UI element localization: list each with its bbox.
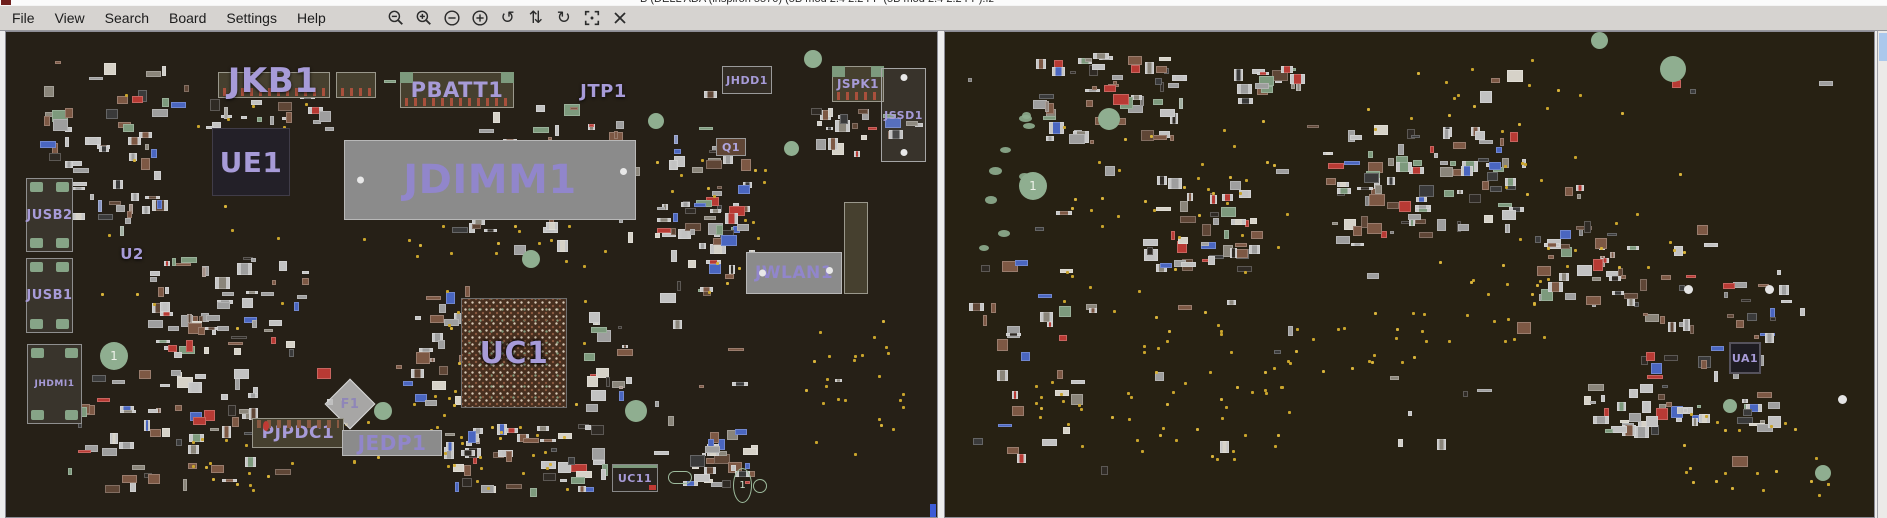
component (1307, 125, 1319, 128)
component (53, 119, 68, 131)
via-dot (1211, 455, 1214, 458)
test-pad (998, 230, 1010, 237)
component (570, 107, 578, 110)
component (690, 455, 705, 467)
component-label: JSSD1 (882, 69, 925, 161)
via-dot (1223, 129, 1226, 132)
component-label: JTP1 (566, 80, 641, 102)
via-dot (1141, 450, 1144, 453)
via-dot (1251, 391, 1254, 394)
component-jedp1[interactable]: JEDP1 (342, 430, 442, 456)
component (160, 302, 170, 312)
via-dot (892, 428, 895, 431)
menu-item-settings[interactable]: Settings (216, 6, 287, 30)
component (1607, 233, 1617, 236)
component (1210, 195, 1217, 204)
component (1723, 283, 1735, 289)
component (210, 428, 219, 431)
via-dot (1636, 213, 1639, 216)
via-dot (1204, 311, 1207, 314)
component (1336, 236, 1350, 244)
component (1090, 140, 1094, 144)
component (1052, 67, 1065, 76)
component (699, 243, 706, 249)
component (725, 213, 738, 224)
component (732, 382, 748, 386)
via-dot (443, 414, 446, 417)
component (473, 457, 477, 464)
component-uc1[interactable]: UC1 (461, 298, 567, 408)
component (234, 348, 241, 355)
via-dot (1692, 481, 1695, 484)
component (1160, 109, 1175, 117)
component (1071, 394, 1083, 405)
mounting-hole (1591, 32, 1608, 49)
via-dot (446, 290, 449, 293)
component-jdimm1[interactable]: JDIMM1 (344, 140, 636, 220)
component (1411, 135, 1420, 138)
via-dot (1089, 286, 1092, 289)
component (1230, 248, 1237, 258)
via-dot (1168, 330, 1171, 333)
board-view-front[interactable]: JKB1PBATT1JTP1JHDD1JSPK1JSSD1UE1JDIMM1U2… (5, 31, 938, 518)
center-focus-icon[interactable] (581, 6, 603, 30)
component (120, 410, 136, 413)
component (171, 370, 181, 376)
menu-item-search[interactable]: Search (95, 6, 159, 30)
component (868, 127, 877, 130)
via-dot (1685, 471, 1688, 474)
component (65, 137, 69, 147)
component (269, 320, 282, 326)
component (1396, 162, 1412, 172)
component (1642, 401, 1651, 413)
menu-item-help[interactable]: Help (287, 6, 336, 30)
via-dot (604, 250, 607, 253)
via-dot (212, 478, 215, 481)
zoom-in-icon[interactable] (413, 6, 435, 30)
component-jwlan1[interactable]: JWLAN1 (746, 252, 842, 294)
component (1469, 194, 1481, 203)
via-dot (1166, 340, 1169, 343)
component (1559, 273, 1569, 281)
zoom-increase-icon[interactable] (469, 6, 491, 30)
zoom-decrease-icon[interactable] (441, 6, 463, 30)
via-dot (1506, 283, 1509, 286)
via-dot (1466, 314, 1469, 317)
component (68, 468, 72, 475)
mounting-hole (522, 250, 540, 268)
component (1668, 322, 1676, 332)
component (738, 185, 750, 194)
component (655, 401, 659, 407)
test-pad (1022, 112, 1031, 119)
component (657, 207, 665, 210)
via-dot (853, 359, 856, 362)
via-dot (1531, 293, 1534, 296)
via-dot (497, 242, 500, 245)
component (1364, 173, 1379, 183)
component (717, 186, 722, 189)
side-panel-selected-row[interactable] (1879, 33, 1887, 61)
component (1593, 416, 1609, 424)
component (464, 465, 471, 476)
component (1230, 181, 1241, 190)
component (97, 398, 110, 402)
component (1045, 101, 1049, 112)
mounting-hole (374, 402, 392, 420)
component (530, 488, 537, 497)
component (1155, 78, 1162, 85)
component (241, 116, 247, 119)
component (729, 265, 735, 274)
via-dot (1143, 345, 1146, 348)
component-pbatt1[interactable]: PBATT1 (400, 72, 514, 108)
component (151, 149, 157, 158)
via-dot (476, 480, 479, 483)
mounting-hole (1815, 465, 1831, 481)
via-dot (566, 488, 569, 491)
component (685, 208, 696, 214)
component (700, 287, 713, 292)
component (403, 381, 413, 386)
component (628, 232, 633, 243)
component (1458, 224, 1469, 231)
via-dot (1413, 356, 1416, 359)
component (983, 315, 987, 326)
component (578, 486, 586, 492)
component (222, 479, 237, 482)
component (997, 339, 1008, 351)
via-dot (805, 389, 808, 392)
via-dot (416, 255, 419, 258)
component (1035, 227, 1044, 231)
component (592, 448, 605, 460)
component (1180, 201, 1188, 212)
component (601, 469, 606, 480)
component (158, 287, 164, 297)
component (1069, 134, 1085, 144)
component (694, 474, 710, 482)
component (204, 347, 209, 354)
component (626, 377, 632, 384)
component (275, 469, 291, 475)
component (704, 467, 716, 474)
component (1063, 427, 1070, 434)
via-dot (252, 489, 255, 492)
via-dot (1738, 429, 1741, 432)
component (1727, 314, 1734, 318)
component (506, 451, 512, 462)
component (673, 320, 682, 329)
zoom-out-icon[interactable] (385, 6, 407, 30)
component-jusb2[interactable]: JUSB2 (26, 178, 73, 252)
via-dot (1669, 241, 1672, 244)
via-dot (1526, 193, 1529, 196)
component (90, 194, 94, 200)
component (145, 144, 149, 150)
via-dot (1071, 207, 1074, 210)
component (1609, 276, 1621, 281)
component (55, 61, 61, 64)
component (1227, 300, 1236, 305)
via-dot (1127, 392, 1130, 395)
component (150, 429, 161, 437)
via-dot (1280, 386, 1283, 389)
component (231, 336, 247, 339)
via-dot (1273, 164, 1276, 167)
component (1367, 223, 1382, 234)
component (1484, 215, 1493, 223)
component (1754, 335, 1759, 339)
component (1565, 187, 1573, 196)
connector-body[interactable] (844, 202, 868, 294)
component (1101, 466, 1108, 475)
component (1819, 81, 1833, 86)
via-dot (1794, 428, 1797, 431)
component (861, 135, 867, 140)
component (157, 200, 162, 209)
via-dot (192, 441, 195, 444)
component-jusb1[interactable]: JUSB1 (26, 258, 73, 333)
component-jkb1[interactable]: JKB1 (198, 60, 348, 102)
component (272, 280, 276, 285)
via-dot (1547, 247, 1550, 250)
component (439, 304, 446, 313)
component (452, 227, 468, 233)
via-dot (1471, 68, 1474, 71)
component (257, 117, 262, 122)
component (1593, 259, 1603, 271)
component (991, 303, 996, 313)
component (49, 153, 61, 161)
component (148, 474, 160, 484)
component (279, 261, 287, 271)
via-dot (575, 403, 578, 406)
via-dot (538, 242, 541, 245)
component-ue1[interactable]: UE1 (212, 128, 290, 196)
via-dot (1209, 371, 1212, 374)
component (493, 112, 500, 123)
via-dot (454, 390, 457, 393)
component-ua1[interactable]: UA1 (1729, 342, 1761, 374)
component (1477, 389, 1492, 392)
via-dot (546, 467, 549, 470)
via-dot (550, 239, 553, 242)
via-dot (828, 355, 831, 358)
via-dot (1220, 333, 1223, 336)
component-jhdd1[interactable]: JHDD1 (722, 66, 772, 94)
via-dot (1232, 450, 1235, 453)
via-dot (716, 262, 719, 265)
via-dot (1262, 120, 1265, 123)
via-dot (1153, 209, 1156, 212)
component (1502, 210, 1516, 220)
component (1351, 243, 1364, 246)
component (1634, 426, 1649, 438)
component (165, 287, 169, 294)
via-dot (1827, 483, 1830, 486)
component (828, 138, 838, 150)
via-dot (713, 195, 716, 198)
rotate-ccw-icon[interactable]: ↺ (497, 6, 519, 30)
via-dot (1244, 271, 1247, 274)
via-dot (1566, 265, 1569, 268)
component (540, 439, 556, 442)
component (484, 229, 497, 232)
via-dot (353, 460, 356, 463)
component-label: F1 (333, 387, 367, 421)
mounting-hole (804, 50, 822, 68)
component-q1[interactable]: Q1 (716, 138, 746, 156)
component-label: UA1 (1731, 344, 1759, 372)
component (1250, 218, 1257, 224)
via-dot (1062, 400, 1065, 403)
component-label: JDIMM1 (345, 141, 635, 219)
component (543, 473, 556, 481)
component (248, 393, 258, 398)
component (737, 224, 749, 231)
via-dot (1673, 249, 1676, 252)
via-dot (680, 174, 683, 177)
via-dot (1245, 179, 1248, 182)
via-dot (1166, 403, 1169, 406)
component (319, 111, 331, 122)
via-dot (201, 438, 204, 441)
via-dot (763, 181, 766, 184)
component (232, 417, 239, 427)
component (705, 446, 720, 453)
component (709, 264, 721, 274)
via-dot (281, 302, 284, 305)
component (584, 353, 595, 361)
component (445, 433, 455, 436)
component (110, 433, 118, 444)
component-label: UE1 (213, 129, 289, 195)
component-label: U2 (112, 244, 152, 264)
via-dot (436, 426, 439, 429)
via-dot (1448, 114, 1451, 117)
component (72, 187, 85, 190)
flip-vertical-icon[interactable]: ⇅ (525, 6, 547, 30)
component (618, 326, 622, 329)
component (1049, 122, 1064, 134)
via-dot (1264, 389, 1267, 392)
via-dot (1374, 128, 1377, 131)
component (1651, 363, 1662, 374)
via-dot (1051, 381, 1054, 384)
component-jssd1[interactable]: JSSD1 (881, 68, 926, 162)
component (606, 377, 610, 387)
component (127, 211, 132, 218)
menu-item-board[interactable]: Board (159, 6, 216, 30)
component (1489, 162, 1501, 170)
menu-item-view[interactable]: View (45, 6, 95, 30)
via-dot (491, 426, 494, 429)
component-u2[interactable]: U2 (112, 244, 152, 264)
via-dot (1230, 351, 1233, 354)
component-jhdmi1[interactable]: JHDMI1 (27, 344, 82, 424)
via-dot (1138, 290, 1141, 293)
component (1168, 83, 1179, 88)
component (1017, 454, 1026, 463)
component (123, 124, 134, 132)
component (614, 131, 618, 139)
component (246, 291, 258, 294)
test-pad (1000, 147, 1011, 153)
component (1128, 56, 1142, 65)
component (1070, 71, 1076, 74)
via-dot (878, 418, 881, 421)
component (162, 428, 170, 437)
component-jtp1[interactable]: JTP1 (566, 80, 641, 102)
component (1178, 305, 1192, 310)
via-dot (1423, 313, 1426, 316)
via-dot (514, 225, 517, 228)
via-dot (656, 161, 659, 164)
via-dot (1157, 347, 1160, 350)
close-icon[interactable] (609, 6, 631, 30)
toolbar: ↺⇅↻ (382, 6, 634, 30)
via-dot (448, 397, 451, 400)
component (1683, 319, 1690, 331)
component (98, 214, 113, 220)
via-dot (249, 484, 252, 487)
via-dot (1063, 300, 1066, 303)
via-dot (844, 399, 847, 402)
via-dot (583, 342, 586, 345)
rotate-cw-icon[interactable]: ↻ (553, 6, 575, 30)
via-dot (1155, 316, 1158, 319)
component (117, 96, 128, 104)
component (72, 182, 87, 186)
component (1660, 316, 1665, 324)
board-view-back[interactable]: UA11 (944, 31, 1875, 518)
via-dot (108, 234, 111, 237)
via-dot (1220, 330, 1223, 333)
via-dot (882, 320, 885, 323)
component (472, 224, 481, 229)
via-dot (1288, 411, 1291, 414)
component (1328, 163, 1344, 169)
component-pjpdc1[interactable]: PJPDC1 (252, 418, 344, 448)
component-jspk1[interactable]: JSPK1 (832, 66, 884, 102)
component (1610, 252, 1615, 258)
via-dot (1493, 320, 1496, 323)
component (1007, 447, 1019, 454)
component (1255, 83, 1269, 89)
component (1419, 232, 1433, 238)
component (1461, 166, 1473, 176)
component (1113, 94, 1129, 105)
component (1690, 325, 1694, 334)
component (461, 450, 475, 456)
component (1357, 187, 1373, 190)
component (1156, 207, 1171, 211)
component (669, 160, 678, 170)
component (174, 352, 182, 358)
via-dot (136, 293, 139, 296)
component (1375, 185, 1382, 194)
component (1646, 416, 1658, 427)
component (1781, 300, 1792, 303)
menu-item-file[interactable]: File (2, 6, 45, 30)
component (89, 77, 103, 80)
board-outline-marker: 1 (733, 468, 752, 503)
component-uc11[interactable]: UC11 (612, 464, 658, 492)
component (1434, 153, 1438, 158)
side-panel-edge[interactable] (1877, 31, 1887, 518)
